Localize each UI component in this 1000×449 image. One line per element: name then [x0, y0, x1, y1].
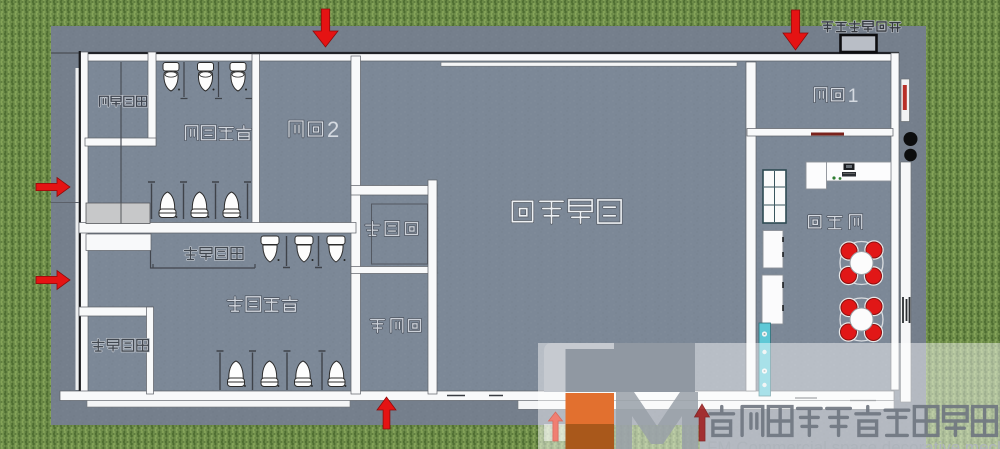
svg-text:1: 1	[848, 86, 859, 107]
svg-text:2: 2	[327, 117, 339, 142]
svg-text:FM Commercial space decorative: FM Commercial space decorative mechanism	[707, 438, 1000, 449]
